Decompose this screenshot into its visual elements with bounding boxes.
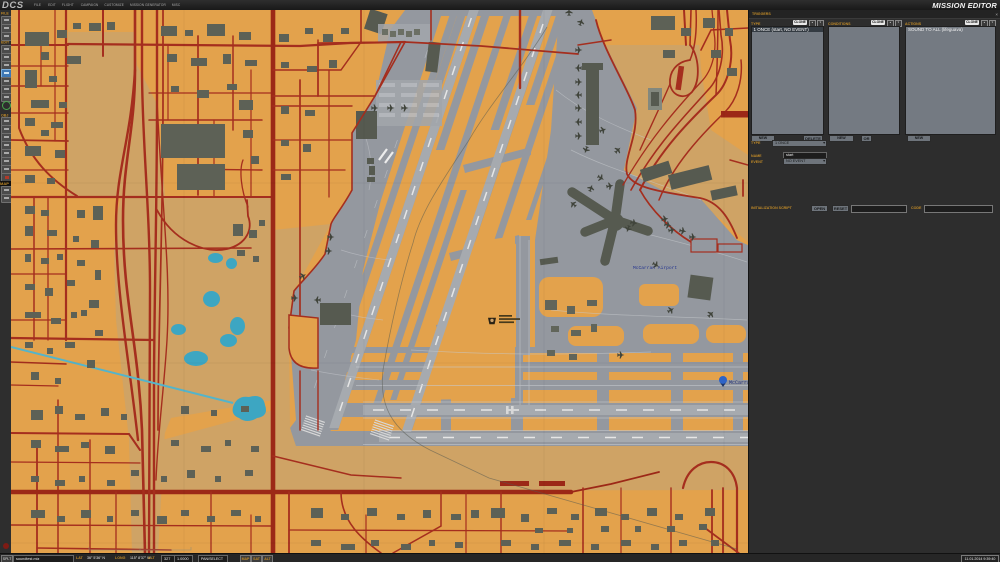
svg-text:McCarran Airport: McCarran Airport	[633, 265, 677, 271]
svg-text:McCarran I: McCarran I	[729, 380, 748, 386]
